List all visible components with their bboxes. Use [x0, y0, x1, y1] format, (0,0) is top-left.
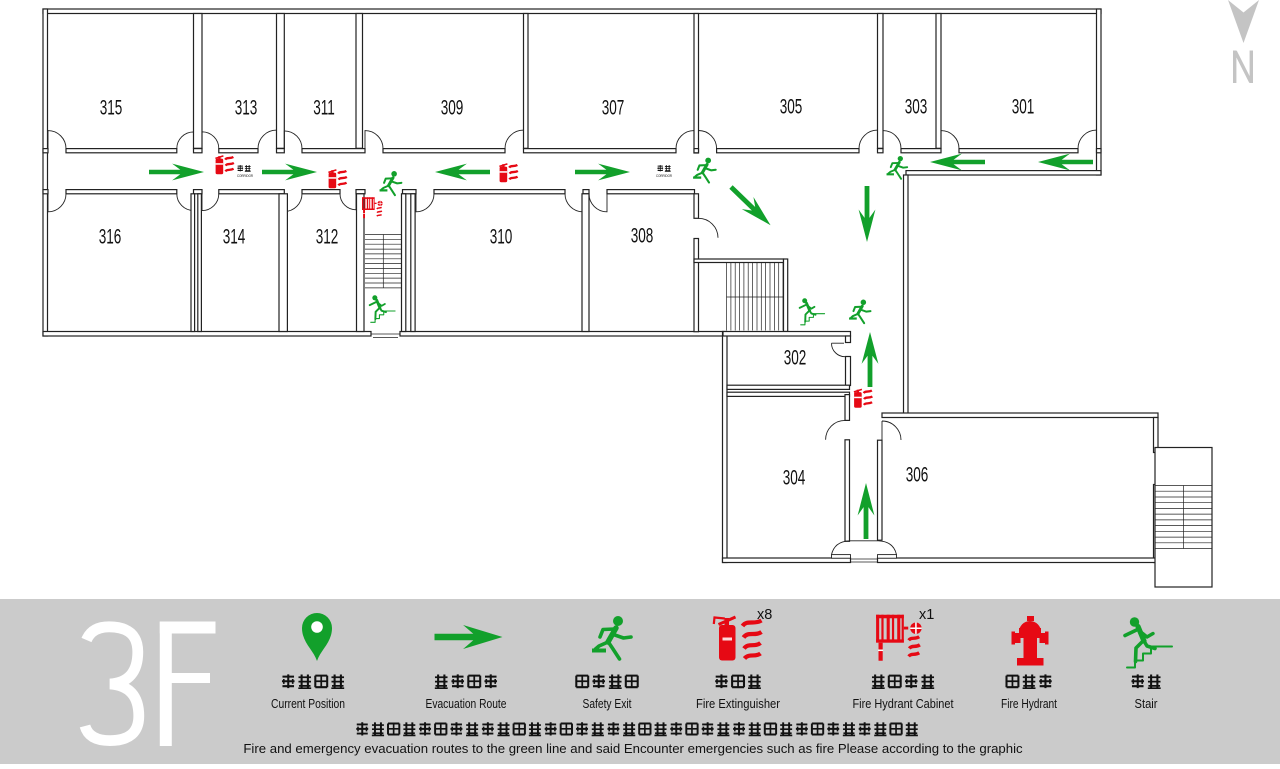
svg-text:Current Position: Current Position: [271, 696, 345, 711]
svg-text:Stair: Stair: [1135, 696, 1159, 711]
svg-text:314: 314: [223, 224, 246, 248]
svg-text:CORRIDOR: CORRIDOR: [237, 174, 253, 178]
svg-text:311: 311: [313, 95, 335, 119]
svg-text:306: 306: [906, 462, 929, 486]
svg-text:x8: x8: [757, 607, 772, 623]
svg-text:308: 308: [631, 223, 654, 247]
svg-text:304: 304: [783, 465, 806, 489]
svg-text:Evacuation Route: Evacuation Route: [426, 696, 507, 711]
svg-text:305: 305: [780, 94, 803, 118]
svg-text:303: 303: [905, 94, 928, 118]
svg-text:313: 313: [235, 95, 258, 119]
svg-text:312: 312: [316, 224, 339, 248]
svg-text:310: 310: [490, 224, 513, 248]
svg-text:316: 316: [99, 224, 122, 248]
svg-text:301: 301: [1012, 94, 1035, 118]
svg-text:Fire Hydrant: Fire Hydrant: [1001, 696, 1057, 711]
svg-text:Fire and emergency evacuation: Fire and emergency evacuation routes to …: [243, 741, 1023, 756]
svg-text:Fire Hydrant Cabinet: Fire Hydrant Cabinet: [853, 696, 954, 711]
svg-text:CORRIDOR: CORRIDOR: [656, 174, 672, 178]
svg-text:315: 315: [100, 95, 123, 119]
svg-text:302: 302: [784, 345, 807, 369]
svg-text:x1: x1: [919, 607, 934, 623]
svg-text:Safety Exit: Safety Exit: [583, 696, 632, 711]
svg-text:307: 307: [602, 95, 625, 119]
svg-text:309: 309: [441, 95, 464, 119]
svg-text:Fire Extinguisher: Fire Extinguisher: [696, 696, 781, 711]
